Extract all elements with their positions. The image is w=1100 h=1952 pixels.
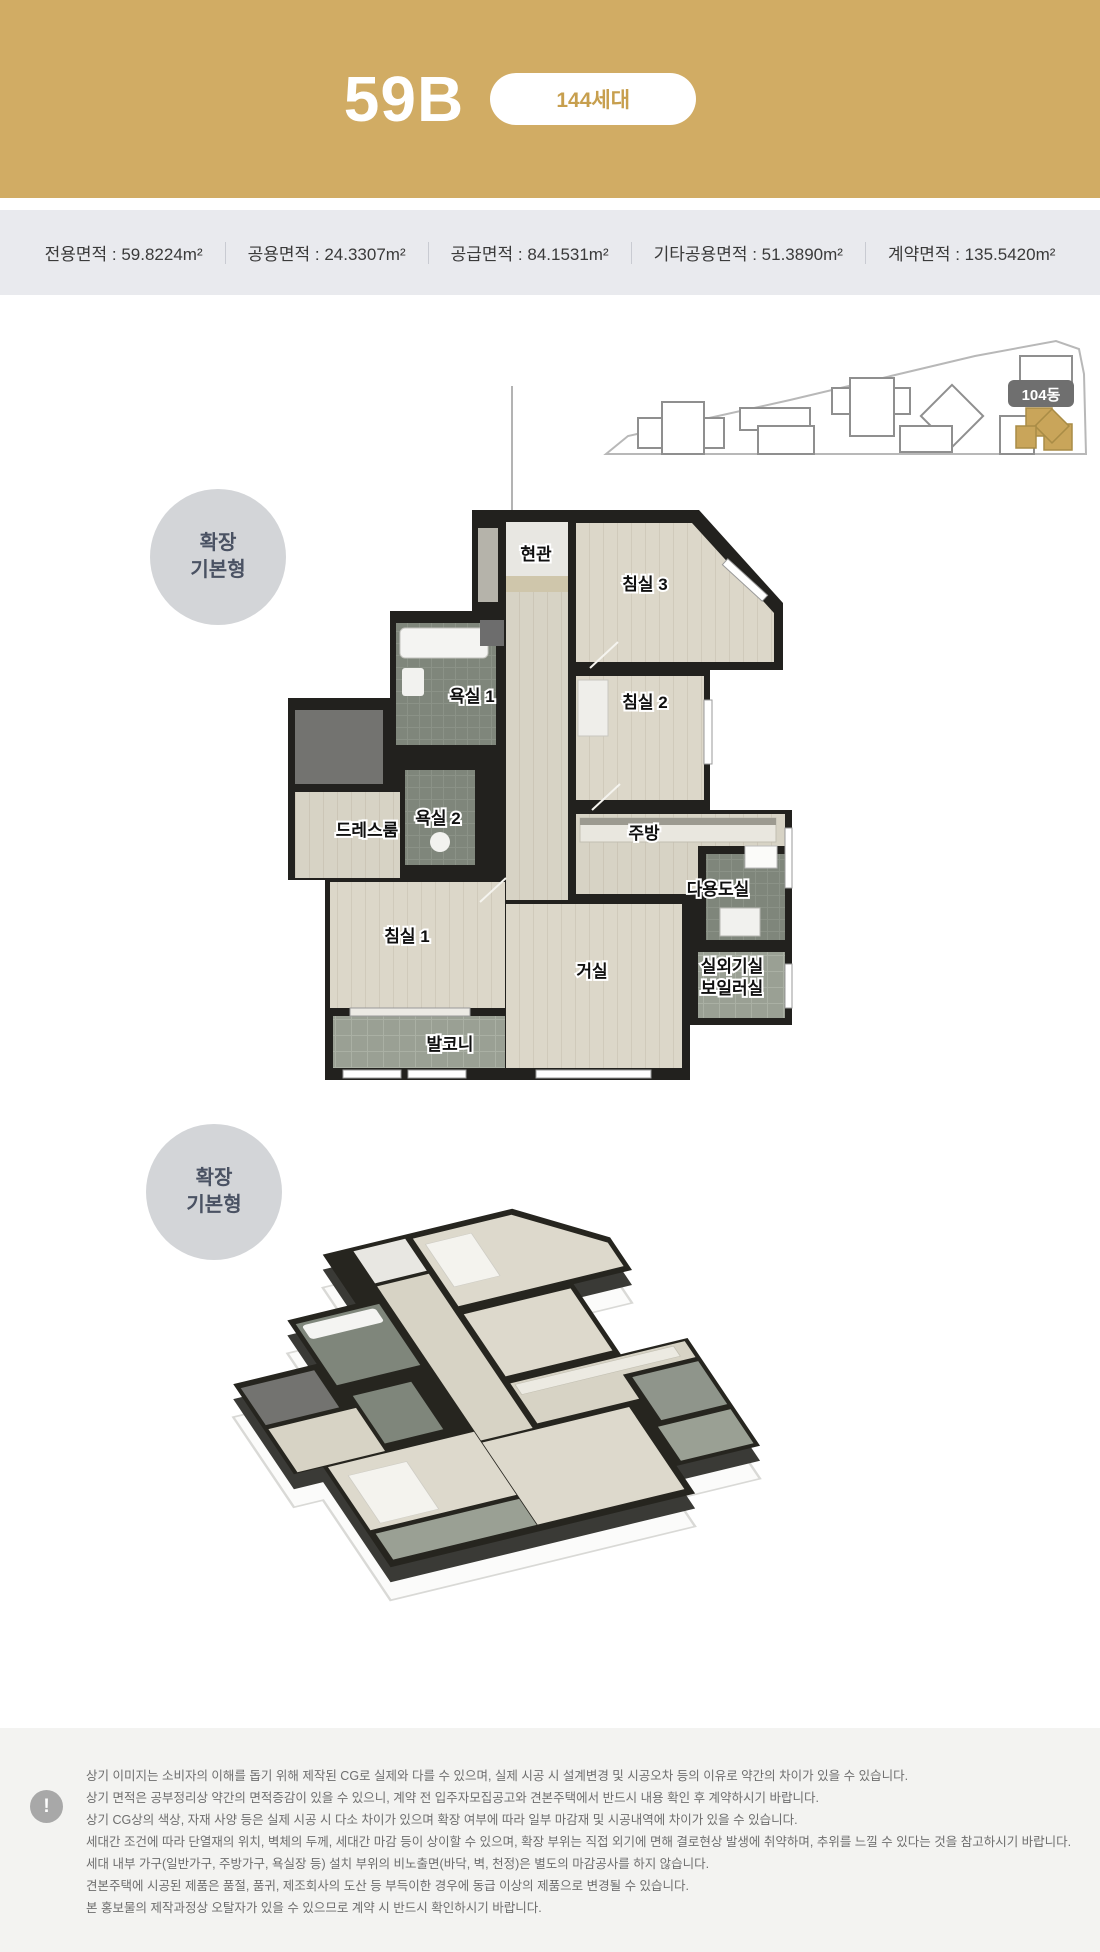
label-bedroom3: 침실 3: [622, 574, 667, 594]
footer-disclaimer: ! 상기 이미지는 소비자의 이해를 돕기 위해 제작된 CG로 실제와 다를 …: [0, 1728, 1100, 1952]
bathroom1-sink: [402, 668, 424, 696]
spec-exclusive-area: 전용면적 : 59.8224m²: [45, 240, 203, 265]
shaft-block: [480, 620, 504, 646]
entrance-mat: [506, 576, 568, 592]
brochure-page: 59B 144세대 전용면적 : 59.8224m² 공용면적 : 24.330…: [0, 0, 1100, 1952]
label-utility: 다용도실: [687, 880, 750, 899]
area-spec-bar: 전용면적 : 59.8224m² 공용면적 : 24.3307m² 공급면적 :…: [0, 210, 1100, 295]
spec-supply-area: 공급면적 : 84.1531m²: [451, 240, 609, 265]
bedroom2-wardrobe: [578, 680, 608, 736]
label-bathroom2: 욕실 2: [415, 809, 460, 828]
disclaimer-line: 본 홍보물의 제작과정상 오탈자가 있을 수 있으므로 계약 시 반드시 확인하…: [86, 1897, 1076, 1919]
balcony-floor: [333, 1016, 505, 1068]
spec-other-common-area: 기타공용면적 : 51.3890m²: [654, 240, 843, 265]
kitchen-counter-edge: [580, 818, 776, 825]
exclamation-icon: !: [30, 1790, 63, 1823]
label-bathroom1: 욕실 1: [449, 687, 494, 706]
spec-contract-area: 계약면적 : 135.5420m²: [888, 240, 1055, 265]
label-outdoor-unit: 실외기실: [701, 957, 764, 976]
label-living: 거실: [576, 962, 607, 981]
bathtub: [400, 628, 488, 658]
household-count-badge: 144세대: [490, 73, 696, 125]
corridor-floor: [506, 592, 568, 900]
label-bedroom1: 침실 1: [384, 926, 429, 946]
disclaimer-line: 세대간 조건에 따라 단열재의 위치, 벽체의 두께, 세대간 마감 등이 상이…: [86, 1831, 1076, 1853]
badge-line-1: 확장: [200, 530, 237, 557]
disclaimer-line: 상기 CG상의 색상, 자재 사양 등은 실제 시공 시 다소 차이가 있으며 …: [86, 1809, 1076, 1831]
disclaimer-text: 상기 이미지는 소비자의 이해를 돕기 위해 제작된 CG로 실제와 다를 수 …: [86, 1765, 1076, 1919]
divider: [428, 242, 429, 264]
bathroom2-toilet: [430, 832, 450, 852]
disclaimer-line: 상기 이미지는 소비자의 이해를 돕기 위해 제작된 CG로 실제와 다를 수 …: [86, 1765, 1076, 1787]
shoe-closet: [478, 528, 498, 602]
divider: [865, 242, 866, 264]
disclaimer-line: 세대 내부 가구(일반가구, 주방가구, 욕실장 등) 설치 부위의 비노출면(…: [86, 1853, 1076, 1875]
bedroom3-floor: [576, 523, 774, 662]
label-dressroom: 드레스룸: [336, 821, 399, 840]
label-boiler: 보일러실: [701, 979, 764, 998]
disclaimer-line: 상기 면적은 공부정리상 약간의 면적증감이 있을 수 있으니, 계약 전 입주…: [86, 1787, 1076, 1809]
page-title: 59B: [344, 67, 464, 131]
spec-common-area: 공용면적 : 24.3307m²: [248, 240, 406, 265]
washer: [720, 908, 760, 936]
kitchen-sink: [745, 846, 777, 868]
label-kitchen: 주방: [628, 824, 660, 843]
header: 59B 144세대: [0, 0, 1100, 198]
disclaimer-line: 견본주택에 시공된 제품은 품절, 품귀, 제조회사의 도산 등 부득이한 경우…: [86, 1875, 1076, 1897]
closet-block: [295, 710, 383, 784]
living-floor: [506, 904, 682, 1068]
label-bedroom2: 침실 2: [622, 692, 667, 712]
label-balcony: 발코니: [427, 1035, 474, 1054]
floor-plan-2d: 현관 침실 3 욕실 1 침실 2 욕실 2 드레스룸 주방 다용도실 침실 1…: [240, 380, 860, 1090]
badge-line-2: 기본형: [190, 557, 245, 584]
divider: [225, 242, 226, 264]
label-entrance: 현관: [520, 545, 552, 564]
divider: [631, 242, 632, 264]
building-label-text: 104동: [1022, 387, 1061, 404]
floor-plan-3d: [0, 1100, 1100, 1660]
